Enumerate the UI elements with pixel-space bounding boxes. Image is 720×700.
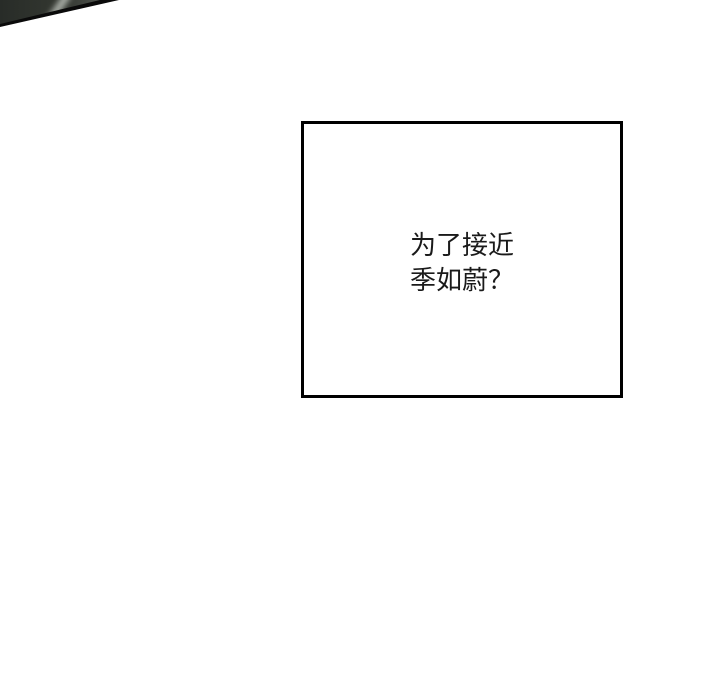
cropped-panel-corner-art: [0, 0, 130, 30]
dialogue-line-1: 为了接近: [410, 228, 514, 263]
artwork-highlight-streak: [36, 0, 74, 36]
dialogue-line-2: 季如蔚？: [410, 263, 514, 298]
dialogue-panel: 为了接近 季如蔚？: [301, 121, 623, 398]
dialogue-text: 为了接近 季如蔚？: [410, 228, 514, 298]
panel-artwork-fill: [0, 0, 130, 30]
